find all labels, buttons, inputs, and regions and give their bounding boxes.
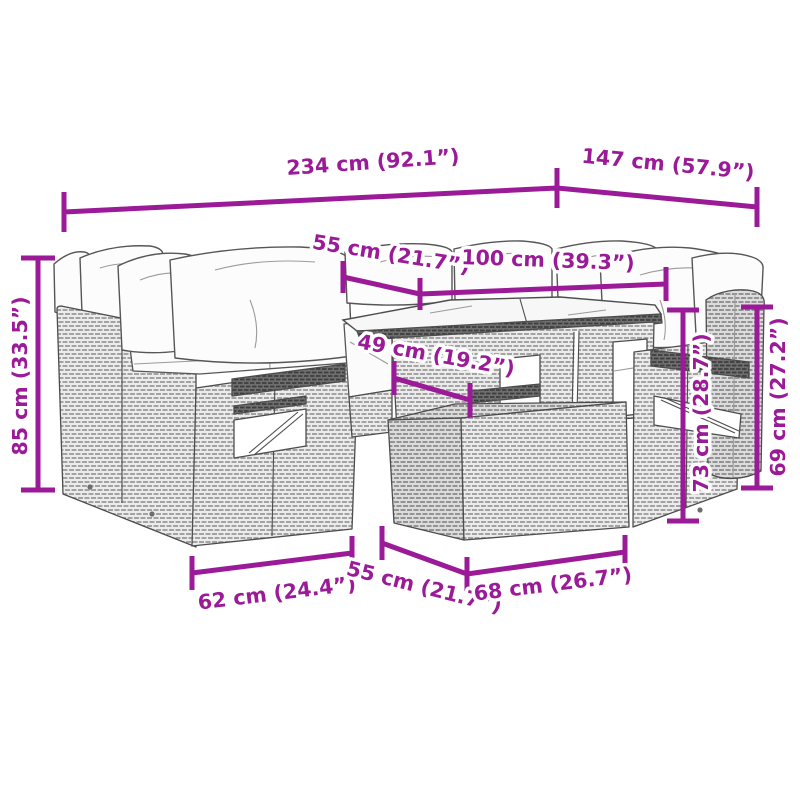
table-base-side <box>388 418 464 540</box>
dim-table-height-label: 73 cm (28.7”) <box>689 333 713 492</box>
dim-module-width-label: 62 cm (24.4”) <box>196 571 357 614</box>
sofa-set-dimension-diagram: 234 cm (92.1”) 147 cm (57.9”) 85 cm (33.… <box>0 0 800 800</box>
back-cushion <box>170 247 352 363</box>
dim-overall-width-label: 234 cm (92.1”) <box>286 144 461 180</box>
bench-front <box>349 390 392 437</box>
dim-total-height-label: 85 cm (33.5”) <box>8 296 32 455</box>
dim-module-width: 62 cm (24.4”) <box>192 536 357 615</box>
dim-overall-depth: 147 cm (57.9”) <box>557 144 757 227</box>
left-sofa-seat-front <box>192 364 358 546</box>
dim-arm-height-label: 69 cm (27.2”) <box>766 317 790 476</box>
dim-total-height: 85 cm (33.5”) <box>8 258 55 490</box>
dim-overall-width: 234 cm (92.1”) <box>64 144 557 232</box>
diagram-canvas: 234 cm (92.1”) 147 cm (57.9”) 85 cm (33.… <box>0 0 800 800</box>
left-front-cushions <box>118 247 352 363</box>
dim-table-width: 68 cm (26.7”) <box>467 535 633 606</box>
dim-overall-depth-label: 147 cm (57.9”) <box>581 144 756 185</box>
table-base-front <box>461 402 629 540</box>
